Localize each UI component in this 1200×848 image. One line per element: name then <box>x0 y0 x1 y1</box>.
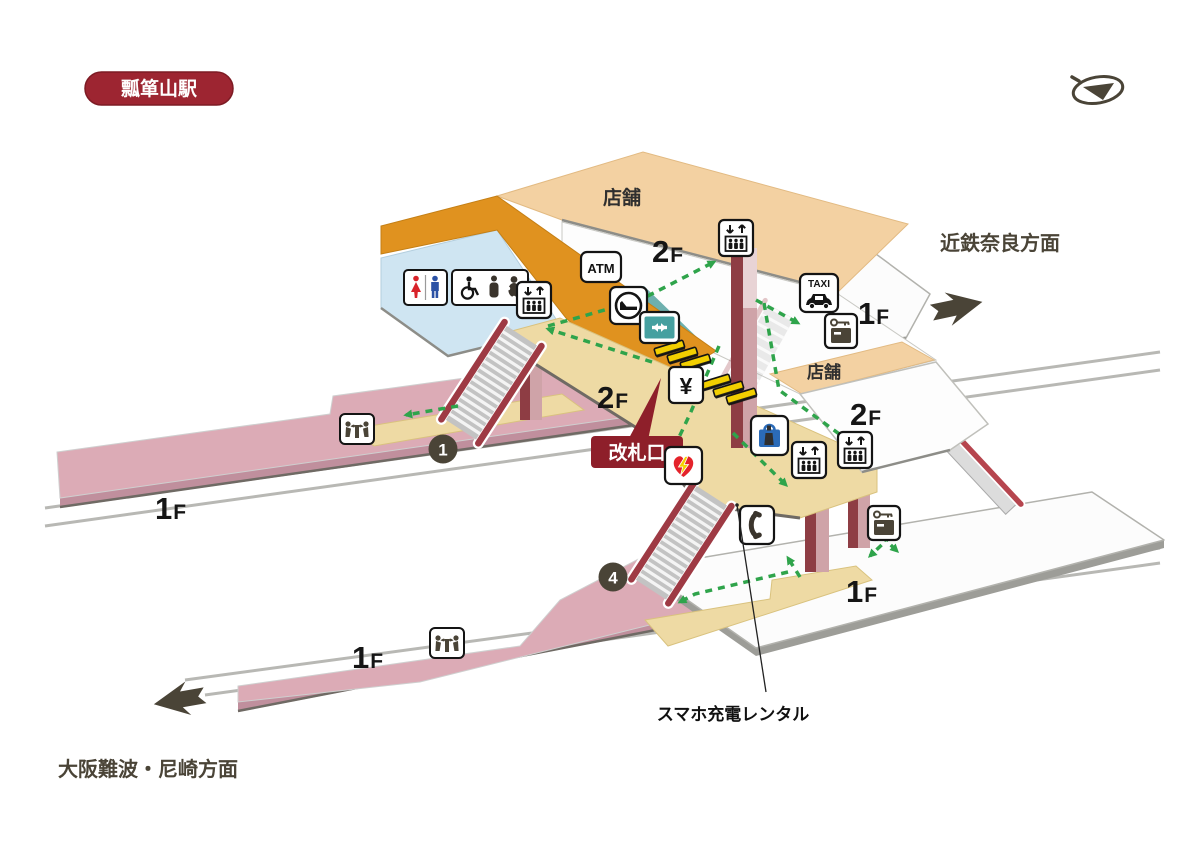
platform-4-badge: 4 <box>599 563 628 592</box>
platform-1-number: 1 <box>438 441 447 460</box>
station-map: 改札口 ATM TAXI ¥ 1 4 店舗 店舗 2F 2F 2F <box>0 0 1200 848</box>
coin-locker-icon-south <box>868 506 900 540</box>
taxi-text: TAXI <box>808 279 830 290</box>
smartphone-rental-label: スマホ充電レンタル <box>657 704 810 724</box>
direction-namba-arrow-icon <box>151 679 208 722</box>
shop-label-top: 店舗 <box>603 186 641 209</box>
station-name-badge: 瓢箪山駅 <box>85 72 233 105</box>
drinking-fountain-icon-p1 <box>340 414 374 444</box>
direction-nara-arrow-icon <box>928 285 986 329</box>
elevator-icon-east <box>838 432 872 468</box>
public-phone-icon <box>740 506 774 544</box>
drinking-fountain-icon-p4 <box>430 628 464 658</box>
ticket-machine-icon: ¥ <box>669 367 703 403</box>
direction-nara-label: 近鉄奈良方面 <box>940 231 1060 255</box>
yen-text: ¥ <box>680 373 693 399</box>
direction-namba-label: 大阪難波・尼崎方面 <box>58 757 238 781</box>
ticket-gate-text: 改札口 <box>608 441 665 464</box>
coin-locker-icon-north <box>825 314 857 348</box>
elevator-icon-concourse <box>517 282 551 318</box>
station-map-canvas: 改札口 ATM TAXI ¥ 1 4 店舗 店舗 2F 2F 2F <box>0 0 1200 848</box>
kiosk-bag-icon <box>751 416 788 455</box>
taxi-icon: TAXI <box>800 274 838 312</box>
platform-4-number: 4 <box>608 569 618 588</box>
station-name-text: 瓢箪山駅 <box>121 77 198 100</box>
aed-icon <box>665 447 702 484</box>
toilet-icon <box>404 270 447 305</box>
shop-label-east: 店舗 <box>807 362 841 382</box>
atm-text: ATM <box>587 261 614 276</box>
floor-1f-label-platform4: 1F <box>352 640 383 675</box>
elevator-icon-top <box>719 220 753 256</box>
elevator-icon-west <box>792 442 826 478</box>
atm-icon: ATM <box>581 252 621 282</box>
platform-1-badge: 1 <box>429 435 458 464</box>
passage-double-arrow-icon <box>640 312 679 343</box>
floor-1f-label-platform1: 1F <box>155 491 186 526</box>
compass-icon <box>1071 73 1125 107</box>
